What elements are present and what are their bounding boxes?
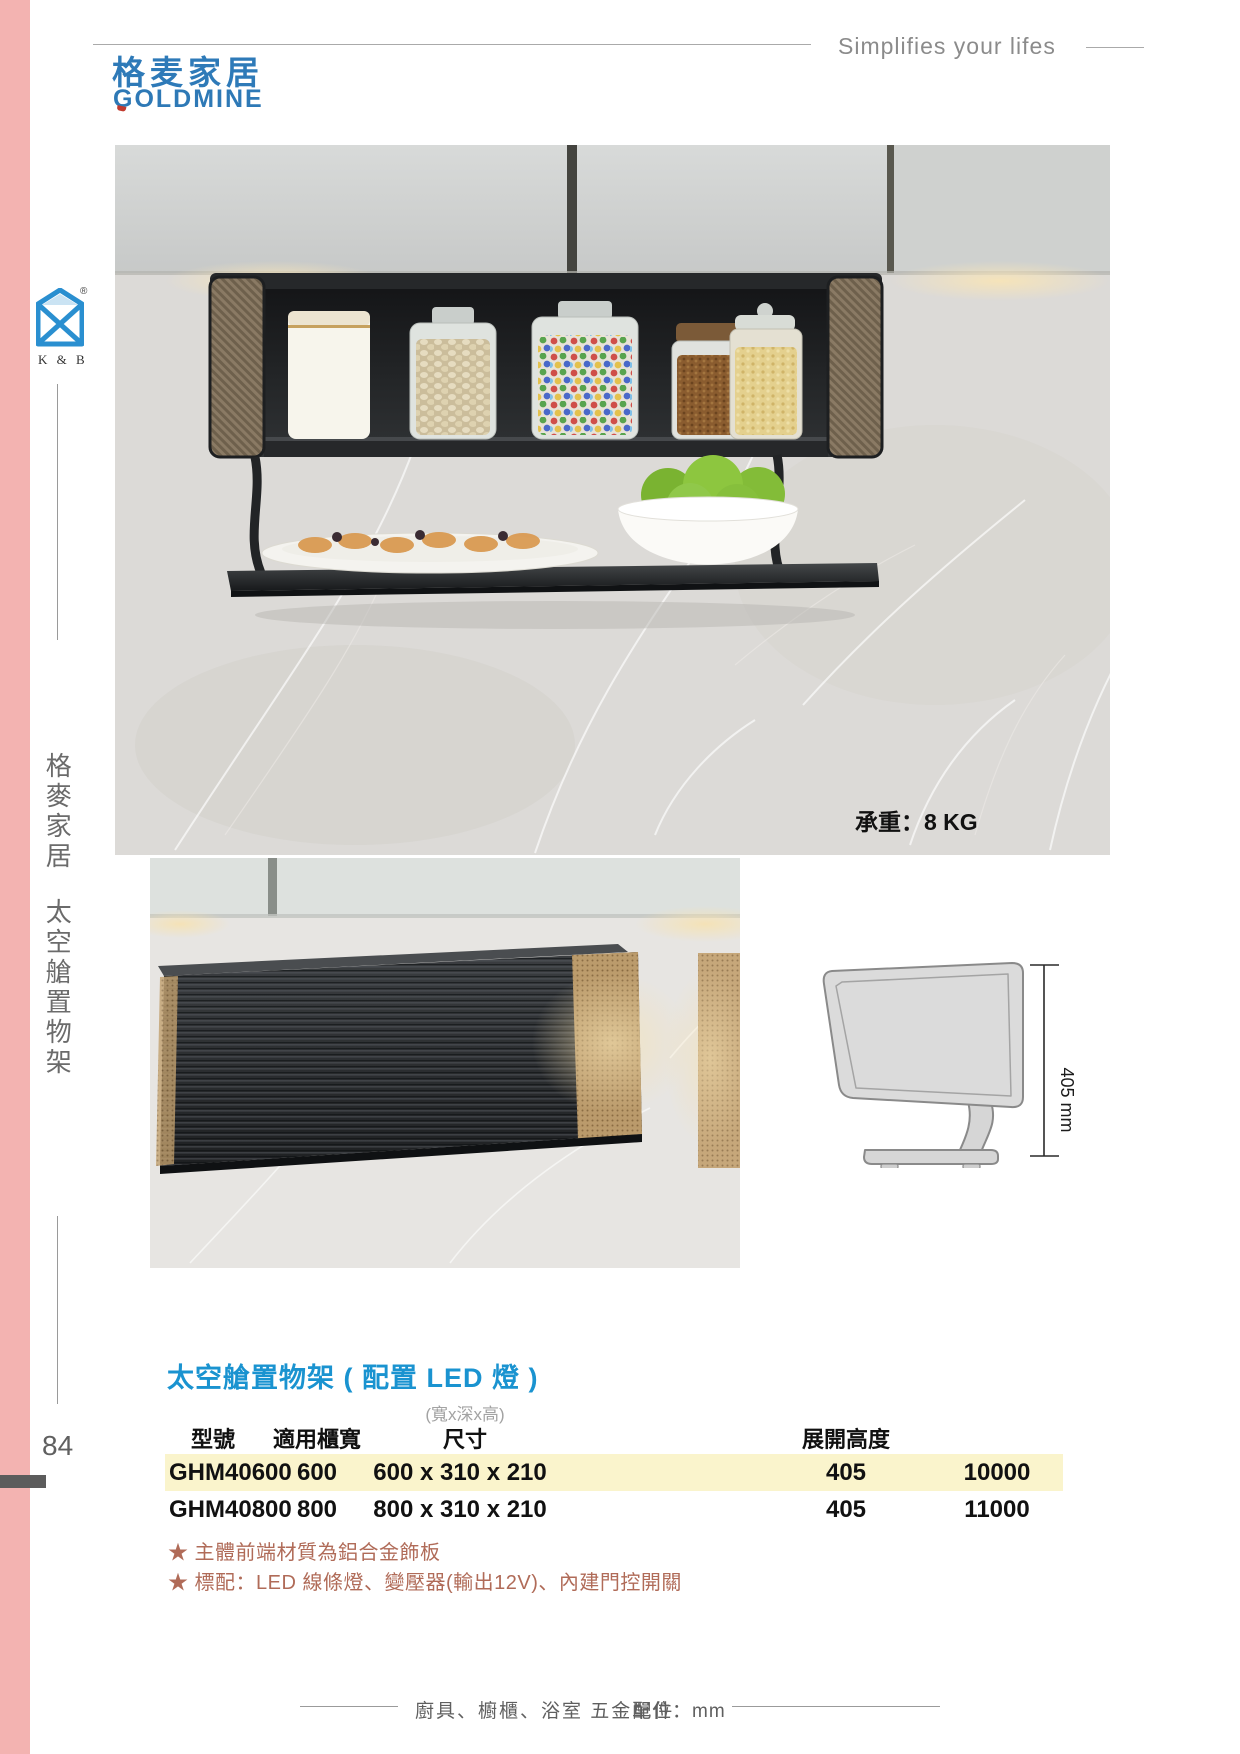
sidebar-divider-top [57,384,58,640]
jar-pasta [730,303,802,439]
cell-open-height: 405 [826,1496,866,1524]
table-header-row: 型號 適用櫃寬 尺寸 展開高度 [165,1422,1063,1452]
header-model: 型號 [191,1422,235,1454]
brand-logo-en: GOLDMINE [113,85,264,114]
dimension-line [1030,965,1059,1156]
cell-size: 800 x 310 x 210 [373,1496,547,1524]
white-canister [288,311,370,439]
header-open-height: 展開高度 [802,1422,890,1454]
sidebar-product-name: 太空艙置物架 [42,898,72,1078]
brand-tagline: Simplifies your lifes [838,33,1056,60]
closed-product-illustration [150,858,740,1268]
cell-price: 11000 [964,1496,1029,1524]
header-rule-left [93,44,811,45]
cell-model: GHM40800 [169,1496,292,1524]
note-material: ★ 主體前端材質為鋁合金飾板 [168,1536,441,1565]
cell-model: GHM40600 [169,1459,292,1487]
footer-unit: 單位：mm [632,1696,726,1723]
kb-registered-mark: ® [80,286,87,297]
header-rule-right [1086,47,1144,48]
closed-product-photo [150,858,740,1268]
under-cabinet-light-right [890,261,1110,301]
kb-logo-label: K & B [38,352,88,368]
left-accent-bar [0,1475,46,1488]
sidebar-series-name: 格麥家居 [42,752,72,872]
hero-scene-illustration [115,145,1110,855]
upper-doors-strip [150,858,740,916]
sidebar-divider-bottom [57,1216,58,1404]
table-row: GHM40600 600 600 x 310 x 210 405 10000 [165,1454,1063,1491]
left-pink-strip [0,0,30,1754]
cell-cabinet-width: 800 [297,1496,337,1524]
kb-logo-icon [36,288,84,348]
cell-cabinet-width: 600 [297,1459,337,1487]
cell-open-height: 405 [826,1459,866,1487]
cell-size: 600 x 310 x 210 [373,1459,547,1487]
load-capacity-label: 承重：8 KG [855,803,978,837]
footer-rule-right [732,1706,940,1707]
open-shelf-box [210,273,882,457]
cell-price: 10000 [964,1459,1031,1487]
dimension-diagram: 405 mm [795,950,1095,1168]
catalog-page: 格麦家居 GOLDMINE Simplifies your lifes ® K … [0,0,1240,1754]
page-number: 84 [42,1430,73,1462]
note-accessories: ★ 標配：LED 線條燈、變壓器(輸出12V)、內建門控開關 [168,1566,682,1595]
jar-candies [532,301,638,439]
dimension-label: 405 mm [1057,1067,1077,1132]
header-size: 尺寸 [443,1422,487,1454]
section-title: 太空艙置物架 ( 配置 LED 燈 ) [167,1356,539,1395]
hero-product-photo: 承重：8 KG [115,145,1110,855]
footer-rule-left [300,1706,398,1707]
table-row: GHM40800 800 800 x 310 x 210 405 11000 [165,1491,1063,1528]
jar-white-beans [410,307,496,439]
closed-shelf-body [156,944,692,1174]
header-cabinet-width: 適用櫃寬 [273,1422,361,1454]
sidebar-vertical-title: 格麥家居太空艙置物架 [41,752,72,1078]
